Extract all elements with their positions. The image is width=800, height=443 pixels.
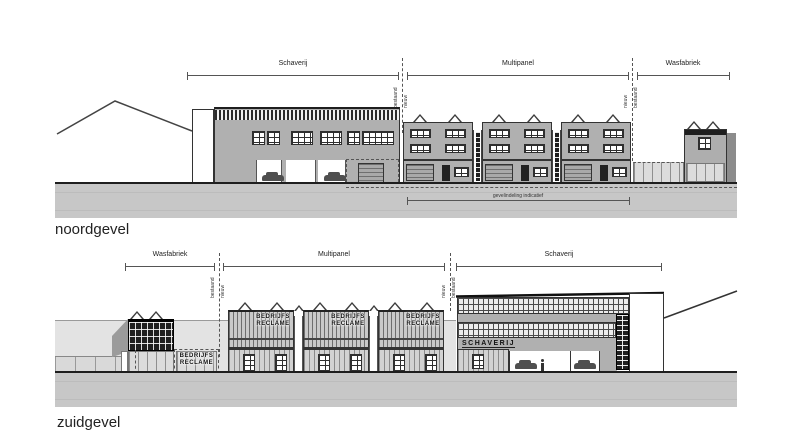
multipanel-sign-text: BEDRIJFS RECLAME xyxy=(253,314,293,328)
north-wasfabriek-shadow xyxy=(727,133,736,183)
south-multipanel-sign-band: BEDRIJFS RECLAME xyxy=(303,310,369,348)
connector-glazing-strip xyxy=(555,132,559,181)
roof-vent-triangle xyxy=(492,114,506,122)
north-boundary-right-dashline xyxy=(632,58,633,161)
multipanel-sign-text: BEDRIJFS RECLAME xyxy=(403,314,443,328)
wasfabriek-window xyxy=(698,137,711,150)
multipanel-connector xyxy=(552,130,561,183)
north-boundary-left-nieuw-label: nieuw xyxy=(404,78,409,108)
south-wasfabriek-pier xyxy=(121,351,128,372)
roof-vent-triangle xyxy=(571,114,585,122)
roof-vent-triangle xyxy=(413,114,427,122)
entrance-door xyxy=(600,165,608,181)
south-schaverij-spandrel xyxy=(457,314,629,322)
house-window xyxy=(410,144,431,153)
multipanel-ground-floor xyxy=(482,160,552,183)
house-window xyxy=(603,144,624,153)
north-schaverij-window xyxy=(267,131,280,145)
north-schaverij-window xyxy=(347,131,360,145)
house-window xyxy=(454,167,469,177)
roof-vent-triangle xyxy=(130,311,144,319)
south-multipanel-ground xyxy=(228,348,294,372)
multipanel-upper-floors xyxy=(561,122,631,160)
south-schaverij-low-slat-block xyxy=(457,349,509,372)
multipanel-sign-text: BEDRIJFS RECLAME xyxy=(328,314,368,328)
ground-door xyxy=(425,354,437,371)
north-schaverij-clerestory-band xyxy=(215,110,399,120)
entrance-door xyxy=(521,165,529,181)
wasfabriek-roof-edge-band xyxy=(685,130,726,135)
south-dim-wasfabriek-line xyxy=(125,266,215,267)
north-schaverij-window xyxy=(362,131,394,145)
south-dim-schaverij-line xyxy=(456,266,662,267)
south-schaverij-stair-tower xyxy=(616,314,629,370)
house-window xyxy=(489,129,510,138)
south-wasfabriek-curtainwall xyxy=(128,319,174,351)
ground-door xyxy=(472,354,484,369)
sign-line1: BEDRIJFS xyxy=(253,314,293,321)
south-schaverij-white-block xyxy=(629,293,664,372)
person-silhouette xyxy=(541,363,544,371)
multipanel-connector xyxy=(369,316,378,372)
roof-vent-triangle xyxy=(270,302,284,310)
north-dim-schaverij-line xyxy=(187,75,399,76)
south-neighbor-roof-diagonal xyxy=(664,291,737,318)
garage-slat-door xyxy=(564,164,592,181)
north-dim-schaverij-label: Schaverij xyxy=(279,60,308,67)
roof-vent-triangle xyxy=(388,302,402,310)
garage-slat-door xyxy=(485,164,513,181)
north-dim-wasfabriek-line xyxy=(637,75,730,76)
sign-line2: RECLAME xyxy=(403,321,443,328)
roof-vent-triangle xyxy=(687,121,701,129)
roof-vent-triangle xyxy=(448,114,462,122)
north-boundary-right-bestaand-label: bestaand xyxy=(634,78,639,108)
schaverij-sign-text: SCHAVERIJ xyxy=(462,340,515,348)
north-multipanel-block xyxy=(482,122,552,183)
south-schaverij-glazing-band-upper xyxy=(457,297,629,314)
north-schaverij-window xyxy=(291,131,313,145)
north-note-label: gevelindeling indicatief xyxy=(493,193,543,199)
south-boundary-left-nieuw-label: nieuw xyxy=(221,268,226,298)
band-rail xyxy=(229,338,293,340)
house-window xyxy=(612,167,627,177)
multipanel-ground-floor xyxy=(403,160,473,183)
south-multipanel-sign-band: BEDRIJFS RECLAME xyxy=(228,310,294,348)
wasfabriek-ground-glazing xyxy=(686,163,725,182)
house-window xyxy=(568,129,589,138)
ground-door xyxy=(350,354,362,371)
north-dim-wasfabriek-label: Wasfabriek xyxy=(666,60,701,67)
north-schaverij-stair-tower xyxy=(192,109,214,183)
roof-vent-triangle xyxy=(313,302,327,310)
north-elevation-title: noordgevel xyxy=(55,221,129,238)
house-window xyxy=(603,129,624,138)
north-note-dim-line xyxy=(407,200,630,201)
multipanel-connector xyxy=(473,130,482,183)
elevation-drawing-canvas: Schaverij Multipanel Wasfabriek bestaand… xyxy=(0,0,800,443)
roof-vent-triangle xyxy=(706,121,720,129)
band-rail xyxy=(304,338,368,340)
roof-vent-triangle xyxy=(527,114,541,122)
garage-slat-door xyxy=(406,164,434,181)
ground-door xyxy=(318,354,330,371)
entrance-door xyxy=(442,165,450,181)
ground-pier xyxy=(599,351,617,372)
sign-line2: RECLAME xyxy=(253,321,293,328)
north-boundary-right-nieuw-label: nieuw xyxy=(624,78,629,108)
house-window xyxy=(568,144,589,153)
band-rail xyxy=(379,338,443,340)
roof-vent-triangle xyxy=(606,114,620,122)
house-window xyxy=(533,167,548,177)
multipanel-upper-floors xyxy=(482,122,552,160)
south-multipanel-ground xyxy=(303,348,369,372)
roof-vent-triangle xyxy=(238,302,252,310)
south-dim-wasfabriek-label: Wasfabriek xyxy=(153,251,188,258)
south-schaverij-glazing-band-lower xyxy=(457,322,616,338)
south-dim-multipanel-label: Multipanel xyxy=(318,251,350,258)
multipanel-upper-floors xyxy=(403,122,473,160)
south-boundary-left-bestaand-label: bestaand xyxy=(211,268,216,298)
north-wasfabriek-glazed-wall xyxy=(633,162,684,183)
south-boundary-right-bestaand-label: bestaand xyxy=(452,268,457,298)
roof-vent-triangle xyxy=(345,302,359,310)
sign-line2: RECLAME xyxy=(328,321,368,328)
north-neighbor-roof-outline xyxy=(57,101,192,134)
north-schaverij-window xyxy=(252,131,265,145)
south-dim-multipanel-line xyxy=(223,266,445,267)
sign-line1: BEDRIJFS xyxy=(403,314,443,321)
house-window xyxy=(489,144,510,153)
south-multipanel-sign-band: BEDRIJFS RECLAME xyxy=(378,310,444,348)
car-silhouette xyxy=(574,363,596,369)
car-silhouette xyxy=(515,363,537,369)
south-ground-band xyxy=(55,373,737,407)
south-boundary-right-nieuw-label: nieuw xyxy=(442,268,447,298)
column xyxy=(570,351,571,372)
north-schaverij-bay-opening xyxy=(286,160,316,183)
house-window xyxy=(524,129,545,138)
house-window xyxy=(445,129,466,138)
south-boundary-left-dashline xyxy=(219,253,220,357)
connector-glazing-strip xyxy=(476,132,480,181)
house-window xyxy=(445,144,466,153)
ground-door xyxy=(393,354,405,371)
house-window xyxy=(524,144,545,153)
south-multipanel-ground xyxy=(378,348,444,372)
north-dim-multipanel-line xyxy=(407,75,629,76)
sign-line1: BEDRIJFS xyxy=(328,314,368,321)
north-multipanel-block xyxy=(561,122,631,183)
north-boundary-left-bestaand-label: bestaand xyxy=(394,78,399,108)
house-window xyxy=(410,129,431,138)
north-dim-multipanel-label: Multipanel xyxy=(502,60,534,67)
ground-door xyxy=(275,354,287,371)
south-dim-schaverij-label: Schaverij xyxy=(545,251,574,258)
car-silhouette xyxy=(262,175,284,181)
north-wasfabriek-building xyxy=(684,129,727,183)
car-silhouette xyxy=(324,175,346,181)
north-ground-band xyxy=(55,184,737,218)
north-schaverij-window xyxy=(320,131,342,145)
multipanel-ground-floor xyxy=(561,160,631,183)
roof-vent-triangle xyxy=(420,302,434,310)
ground-door xyxy=(243,354,255,371)
north-base-dashed-line xyxy=(346,187,737,188)
multipanel-connector xyxy=(294,316,303,372)
roof-vent-triangle xyxy=(149,311,163,319)
north-multipanel-block xyxy=(403,122,473,183)
south-elevation-title: zuidgevel xyxy=(57,414,120,431)
